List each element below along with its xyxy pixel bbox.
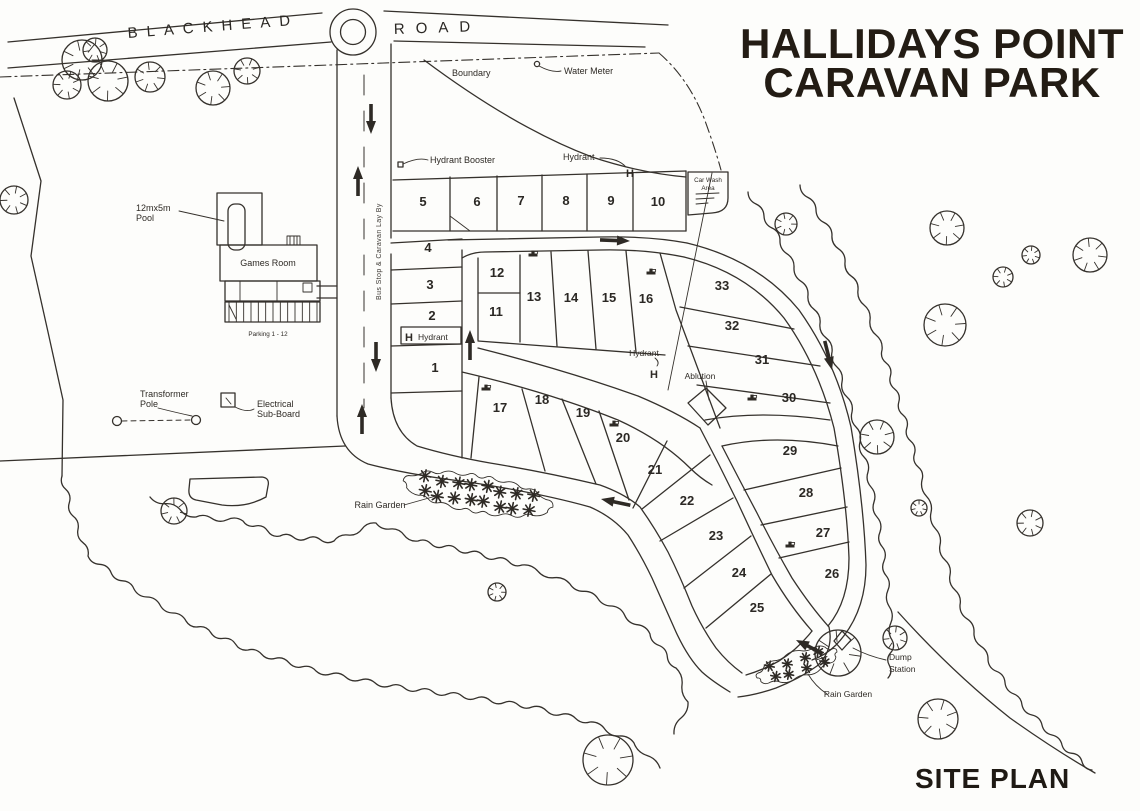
road-name-road: ROAD (394, 18, 482, 38)
label-pool-2: Pool (136, 213, 154, 223)
hydrant-booster-icon (398, 162, 403, 167)
tree-icon (1073, 238, 1107, 272)
tree-icon (918, 699, 958, 739)
hydrant-icon: H (650, 369, 658, 381)
label-hydrant-mid: Hydrant (629, 348, 659, 358)
lot-number-32: 32 (725, 318, 739, 333)
buildings-layer (113, 61, 852, 650)
trees-layer (0, 38, 1107, 785)
lot-number-10: 10 (651, 194, 665, 209)
tree-icon (911, 500, 927, 516)
lot-number-19: 19 (576, 405, 590, 420)
lot-number-20: 20 (616, 430, 630, 445)
tap-icon (482, 385, 491, 391)
bus-stop-layby-label: Bus Stop & Caravan Lay By (376, 203, 383, 300)
pond-shape (189, 477, 269, 506)
left-arrow-icon (600, 494, 631, 510)
lot-number-21: 21 (648, 462, 662, 477)
label-electrical-1: Electrical (257, 399, 294, 409)
lot-number-14: 14 (564, 290, 579, 305)
lot-number-3: 3 (426, 277, 433, 292)
page-title-line2: CARAVAN PARK (763, 59, 1100, 106)
roundabout-icon (330, 9, 376, 55)
parking-strip (225, 302, 320, 322)
tree-icon (83, 38, 107, 62)
label-ablution: Ablution (685, 371, 716, 381)
lot-number-4: 4 (424, 240, 432, 255)
label-transformer-1: Transformer (140, 389, 189, 399)
tree-icon (0, 186, 28, 214)
label-pool-1: 12mx5m (136, 203, 171, 213)
down-arrow-icon (371, 342, 381, 372)
lot-number-26: 26 (825, 566, 839, 581)
tree-icon (775, 213, 797, 235)
site-plan-drawing: 1234567891011121314151617181920212223242… (0, 0, 1140, 811)
down-arrow-icon (366, 104, 376, 134)
label-water-meter: Water Meter (564, 66, 613, 76)
lot-number-15: 15 (602, 290, 616, 305)
lot-number-13: 13 (527, 289, 541, 304)
lot-number-17: 17 (493, 400, 507, 415)
down-right-arrow-icon (820, 340, 837, 372)
lot-number-27: 27 (816, 525, 830, 540)
lot-number-30: 30 (782, 390, 796, 405)
site-plan-label: SITE PLAN (915, 763, 1070, 794)
label-parking: Parking 1 - 12 (248, 331, 288, 338)
lot-number-16: 16 (639, 291, 653, 306)
label-car-wash-1: Car Wash (694, 177, 722, 184)
hydrant-icon: H (405, 332, 413, 344)
up-arrow-icon (353, 166, 363, 196)
tree-icon (1022, 246, 1040, 264)
lot-number-7: 7 (517, 193, 524, 208)
pool-icon (228, 204, 245, 250)
tree-icon (860, 420, 894, 454)
tree-icon (930, 211, 964, 245)
tree-icon (196, 71, 230, 105)
leader-lines-layer (158, 66, 886, 694)
lot-number-22: 22 (680, 493, 694, 508)
tree-icon (161, 498, 187, 524)
label-hydrant-booster: Hydrant Booster (430, 155, 495, 165)
roof-vent-icon (287, 236, 300, 245)
tap-icon (786, 542, 795, 548)
rain-garden (403, 470, 553, 517)
tree-icon (883, 626, 907, 650)
tree-icon (88, 61, 128, 101)
tap-icon (610, 421, 619, 427)
road-name-blackhead: BLACKHEAD (127, 12, 300, 42)
lot-number-5: 5 (419, 194, 426, 209)
boundary-line (0, 53, 659, 77)
rain-garden (756, 646, 837, 684)
tree-icon (583, 735, 633, 785)
lot-number-31: 31 (755, 352, 769, 367)
label-transformer-2: Pole (140, 399, 158, 409)
lot-number-23: 23 (709, 528, 723, 543)
vegetation-line (800, 185, 1092, 770)
lot-number-11: 11 (489, 304, 503, 319)
lot-number-33: 33 (715, 278, 729, 293)
tree-icon (488, 583, 506, 601)
up-arrow-icon (465, 330, 475, 360)
vegetation-line (61, 476, 660, 768)
label-hydrant-top: Hydrant (563, 152, 595, 162)
label-rain-garden-right: Rain Garden (824, 689, 872, 699)
tree-icon (135, 62, 165, 92)
vegetation-line (748, 192, 894, 678)
tree-icon (1017, 510, 1043, 536)
label-electrical-2: Sub-Board (257, 409, 300, 419)
lot-number-8: 8 (562, 193, 569, 208)
lot-number-25: 25 (750, 600, 764, 615)
lot-numbers-layer: 1234567891011121314151617181920212223242… (419, 193, 839, 615)
hydrant-icon: H (626, 168, 634, 180)
lot-number-12: 12 (490, 265, 504, 280)
labels-layer: BLACKHEAD ROAD Bus Stop & Caravan Lay By… (127, 12, 1124, 794)
lot-number-6: 6 (473, 194, 480, 209)
tree-icon (234, 58, 260, 84)
transformer-pole-icon (113, 417, 122, 426)
up-arrow-icon (357, 404, 367, 434)
site-plan-page: 1234567891011121314151617181920212223242… (0, 0, 1140, 811)
label-car-wash-2: Area (701, 185, 715, 192)
lot-number-24: 24 (732, 565, 747, 580)
lot-number-9: 9 (607, 193, 614, 208)
tree-icon (53, 71, 81, 99)
lot-number-18: 18 (535, 392, 549, 407)
label-rain-garden-left: Rain Garden (354, 500, 405, 510)
lot-number-29: 29 (783, 443, 797, 458)
pool-building (217, 193, 262, 245)
label-dump-2: Station (889, 664, 916, 674)
vegetation-layer (61, 185, 1092, 770)
lot-number-2: 2 (428, 308, 435, 323)
tree-icon (924, 304, 966, 346)
tap-icon (748, 395, 757, 401)
label-games-room: Games Room (240, 258, 296, 268)
lot-number-1: 1 (431, 360, 438, 375)
lot-number-28: 28 (799, 485, 813, 500)
label-dump-1: Dump (889, 652, 912, 662)
vegetation-line (150, 497, 688, 734)
tree-icon (62, 40, 102, 80)
tree-icon (993, 267, 1013, 287)
label-boundary: Boundary (452, 68, 491, 78)
tap-icon (647, 269, 656, 275)
label-hydrant-lot2: Hydrant (418, 332, 448, 342)
